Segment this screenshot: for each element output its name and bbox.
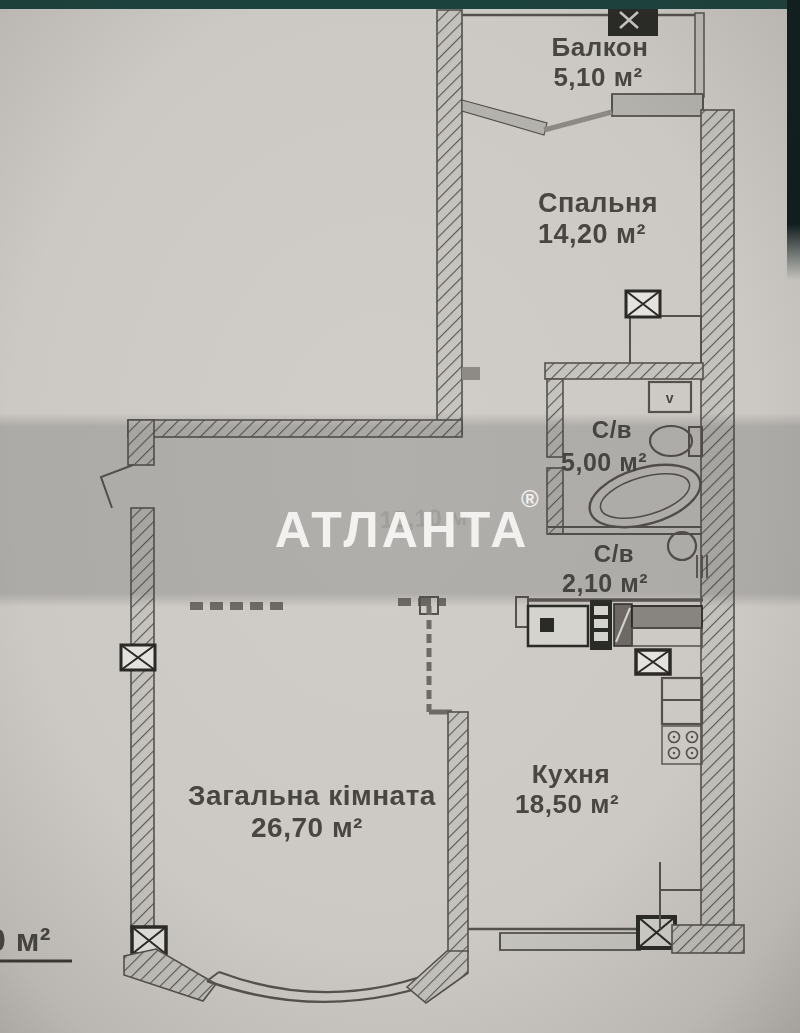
floorplan-svg: v	[0, 0, 800, 1033]
floorplan-photo: v	[0, 0, 800, 1033]
photo-vignette	[0, 0, 800, 1033]
